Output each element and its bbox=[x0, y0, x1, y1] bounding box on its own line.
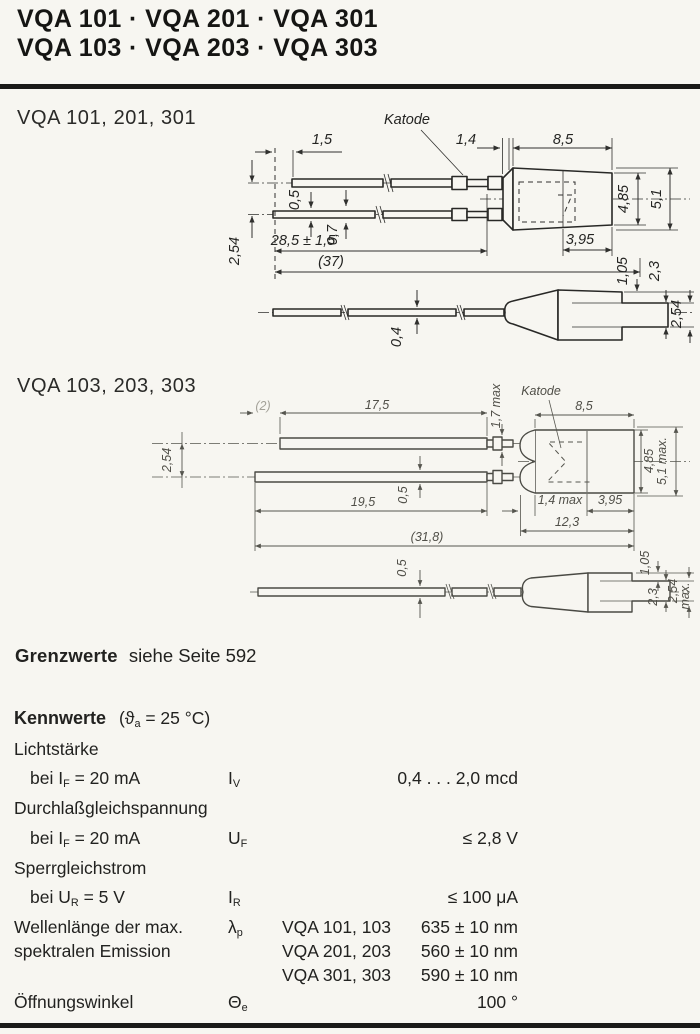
row-wavelength-2: spektralen Emission VQA 201, 203 560 ± 1… bbox=[0, 941, 700, 963]
dim-flange-dia: 5,1 bbox=[649, 189, 665, 209]
package-side-view: 0,5 1,05 2,3 2,54 max. bbox=[250, 551, 694, 618]
symbol-iv: IV bbox=[228, 768, 240, 790]
symbol-uf: UF bbox=[228, 828, 247, 850]
dim-overall-length: (31,8) bbox=[411, 530, 444, 544]
dim-tip-length: (2) bbox=[255, 399, 270, 413]
vqa103-outline-drawing: Katode (2) 17,5 1,7 max 8,5 2,54 bbox=[0, 370, 700, 630]
dim-overall-length: (37) bbox=[318, 254, 344, 270]
dim-lower-lead-length: 19,5 bbox=[351, 495, 375, 509]
dim-wire-thickness: 0,5 bbox=[396, 486, 410, 503]
dim-lead-pitch: 2,54 bbox=[160, 448, 174, 473]
dim-flange-dia: 5,1 max. bbox=[655, 437, 669, 485]
dim-cap-length: 12,3 bbox=[555, 515, 579, 529]
dim-step-a: 1,05 bbox=[615, 256, 631, 285]
vqa101-outline-drawing: 1,5 Katode 1,4 8,5 0,5 0,7 2,54 bbox=[0, 100, 700, 370]
dim-body-dia: 4,85 bbox=[642, 449, 656, 473]
dim-nose-length: 3,95 bbox=[566, 232, 595, 248]
page-title: VQA 101 · VQA 201 · VQA 301 VQA 103 · VQ… bbox=[17, 5, 378, 63]
datasheet-page: VQA 101 · VQA 201 · VQA 301 VQA 103 · VQ… bbox=[0, 0, 700, 1034]
title-line-2: VQA 103 · VQA 203 · VQA 303 bbox=[17, 34, 378, 63]
param-sperrgleichstrom: Sperrgleichstrom bbox=[14, 858, 146, 879]
katode-label: Katode bbox=[384, 112, 430, 128]
dim-side-step-b: 2,3 bbox=[646, 588, 660, 606]
dim-side-tab-height-suffix: max. bbox=[678, 582, 692, 609]
dim-dome-length: 1,4 max bbox=[538, 493, 583, 507]
dim-nose-length: 3,95 bbox=[598, 493, 622, 507]
kennwerte-heading-line: Kennwerte(ϑa = 25 °C) bbox=[14, 708, 210, 730]
value-uf: ≤ 2,8 V bbox=[300, 828, 518, 849]
dim-crimp-height: 1,7 max bbox=[489, 383, 503, 428]
value-iv: 0,4 . . . 2,0 mcd bbox=[300, 768, 518, 789]
row-oeffnungswinkel: Öffnungswinkel Θe 100 ° bbox=[0, 992, 700, 1014]
top-rule bbox=[0, 84, 700, 89]
param-lichtstaerke: Lichtstärke bbox=[14, 739, 99, 760]
limits-label: Grenzwerte bbox=[15, 645, 118, 666]
dim-step-b: 2,3 bbox=[647, 261, 663, 282]
dim-side-wire-thickness: 0,4 bbox=[389, 327, 405, 347]
row-uf: bei IF = 20 mA UF ≤ 2,8 V bbox=[0, 828, 700, 850]
symbol-ir: IR bbox=[228, 887, 241, 909]
katode-label: Katode bbox=[521, 384, 561, 398]
value-635nm: 635 ± 10 nm bbox=[300, 917, 518, 938]
package-side-view: 0,4 2,54 bbox=[258, 290, 695, 347]
value-100deg: 100 ° bbox=[300, 992, 518, 1013]
param-durchlassspannung: Durchlaßgleichspannung bbox=[14, 798, 208, 819]
limits-text: siehe Seite 592 bbox=[129, 645, 257, 666]
dim-body-length: 8,5 bbox=[553, 132, 574, 148]
dim-lead-stagger: 1,5 bbox=[312, 132, 333, 148]
symbol-theta-e: Θe bbox=[228, 992, 248, 1014]
row-wavelength-1: Wellenlänge der max. λp VQA 101, 103 635… bbox=[0, 917, 700, 939]
dim-body-length: 8,5 bbox=[575, 399, 592, 413]
value-ir: ≤ 100 μA bbox=[300, 887, 518, 908]
value-560nm: 560 ± 10 nm bbox=[300, 941, 518, 962]
dim-lead-length: 28,5 ± 1,5 bbox=[270, 233, 336, 249]
dim-body-dia: 4,85 bbox=[616, 184, 632, 213]
bottom-rule bbox=[0, 1023, 700, 1028]
dim-side-step-a: 1,05 bbox=[638, 551, 652, 575]
symbol-lambda-p: λp bbox=[228, 917, 243, 939]
kennwerte-heading: Kennwerte bbox=[14, 708, 106, 728]
value-590nm: 590 ± 10 nm bbox=[300, 965, 518, 986]
dim-upper-lead-length: 17,5 bbox=[365, 398, 389, 412]
dim-seat-length: 1,4 bbox=[456, 132, 476, 148]
row-lichtstaerke: bei IF = 20 mA IV 0,4 . . . 2,0 mcd bbox=[0, 768, 700, 790]
row-ir: bei UR = 5 V IR ≤ 100 μA bbox=[0, 887, 700, 909]
dim-side-tab-height: 2,54 bbox=[669, 300, 685, 329]
dim-side-wire-thickness: 0,5 bbox=[395, 559, 409, 576]
dim-lead-pitch: 2,54 bbox=[227, 237, 243, 266]
row-wavelength-3: VQA 301, 303 590 ± 10 nm bbox=[0, 965, 700, 987]
package-main-view bbox=[152, 400, 690, 493]
dim-wire-thickness-a: 0,5 bbox=[287, 189, 303, 210]
limits-note: Grenzwerte siehe Seite 592 bbox=[15, 645, 256, 667]
title-line-1: VQA 101 · VQA 201 · VQA 301 bbox=[17, 5, 378, 34]
